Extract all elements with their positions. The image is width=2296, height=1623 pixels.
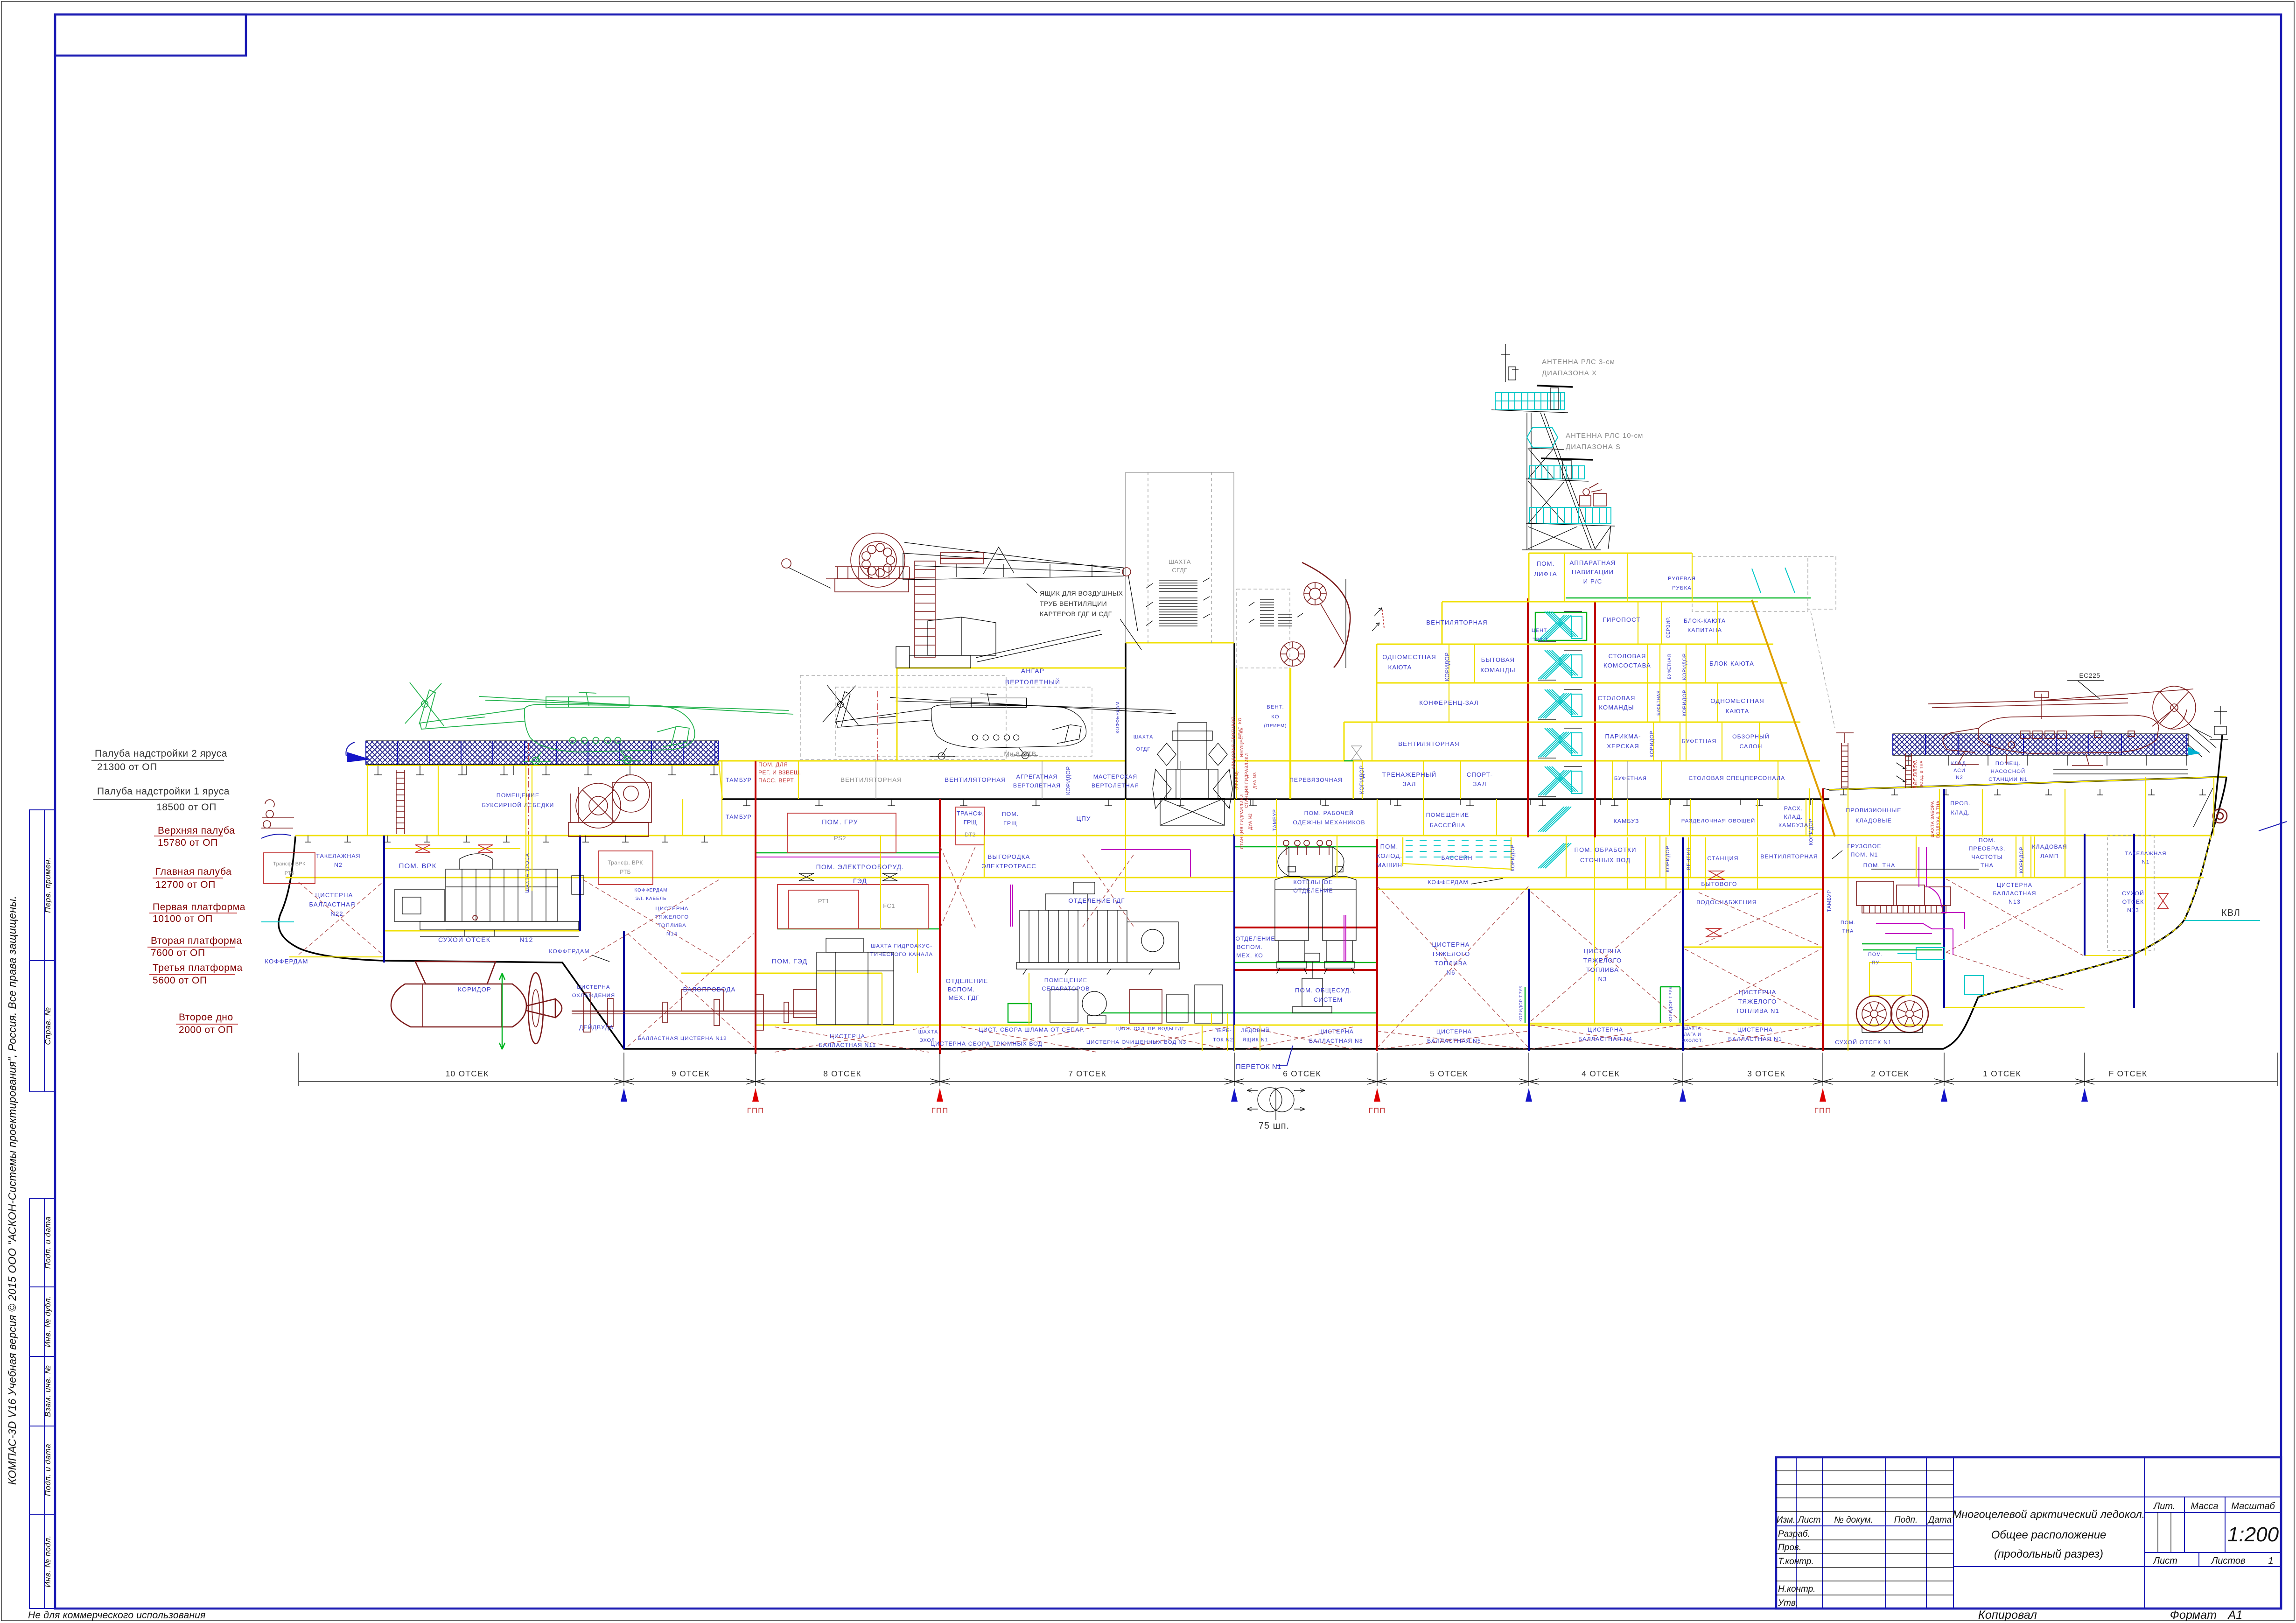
svg-text:N12: N12 — [519, 936, 533, 943]
svg-text:ШАХТА: ШАХТА — [1169, 558, 1191, 565]
svg-text:ШАХТА: ШАХТА — [918, 1029, 938, 1035]
svg-text:ЛАГА И: ЛАГА И — [1684, 1032, 1701, 1037]
svg-text:СУХОЙ ОТСЕК: СУХОЙ ОТСЕК — [438, 935, 490, 943]
svg-text:АГРЕГАТНАЯ: АГРЕГАТНАЯ — [1016, 773, 1058, 780]
svg-text:12700 от ОП: 12700 от ОП — [155, 879, 216, 890]
svg-text:НАСОСНОЙ: НАСОСНОЙ — [1991, 768, 2026, 774]
svg-text:Подп. и дата: Подп. и дата — [43, 1444, 52, 1496]
svg-text:КАРТЕРОВ ГДГ И СДГ: КАРТЕРОВ ГДГ И СДГ — [1040, 610, 1112, 618]
svg-text:КОРИДОР: КОРИДОР — [1649, 731, 1655, 757]
svg-text:2000 от ОП: 2000 от ОП — [179, 1025, 233, 1035]
svg-text:БАЛЛАСТНАЯ ЦИСТЕРНА N12: БАЛЛАСТНАЯ ЦИСТЕРНА N12 — [637, 1036, 727, 1041]
svg-text:N1: N1 — [2142, 859, 2150, 865]
svg-text:4 ОТСЕК: 4 ОТСЕК — [1582, 1069, 1620, 1078]
svg-text:КОРИДОР: КОРИДОР — [2019, 846, 2024, 873]
svg-text:ПОМ.: ПОМ. — [1002, 811, 1019, 817]
svg-text:КОРИДОР: КОРИДОР — [1510, 844, 1516, 871]
svg-text:Дата: Дата — [1927, 1515, 1952, 1525]
svg-text:ПОМ. РАБОЧЕЙ: ПОМ. РАБОЧЕЙ — [1304, 809, 1354, 816]
svg-text:ЛЕДОВЫЙ: ЛЕДОВЫЙ — [1241, 1027, 1269, 1033]
svg-text:ЦИСТЕРНА: ЦИСТЕРНА — [1318, 1028, 1354, 1035]
svg-text:ЦИСТ. ОХЛ. ПР. ВОДЫ ГДГ: ЦИСТ. ОХЛ. ПР. ВОДЫ ГДГ — [1116, 1026, 1184, 1032]
svg-text:ВСПОМ.: ВСПОМ. — [948, 986, 975, 993]
svg-text:РТБ: РТБ — [620, 869, 631, 875]
svg-text:Главная палуба: Главная палуба — [155, 866, 231, 877]
svg-text:БАЛЛАСТНАЯ N5: БАЛЛАСТНАЯ N5 — [1427, 1038, 1481, 1044]
svg-text:ЧАСТОТЫ: ЧАСТОТЫ — [1971, 854, 2002, 860]
svg-text:СТОЛОВАЯ: СТОЛОВАЯ — [1597, 695, 1635, 702]
svg-text:КЛАДОВАЯ: КЛАДОВАЯ — [2032, 843, 2067, 850]
svg-text:ЕС225: ЕС225 — [2079, 672, 2100, 679]
svg-text:ТАМБУР: ТАМБУР — [726, 814, 752, 820]
svg-text:Взам. инв. №: Взам. инв. № — [43, 1365, 52, 1417]
svg-text:КОМАНДЫ: КОМАНДЫ — [1599, 704, 1634, 711]
svg-text:ВЕНТИЛ.: ВЕНТИЛ. — [1686, 846, 1692, 870]
svg-text:ЦИСТ. СБОРА ШЛАМА ОТ СЕПАР.: ЦИСТ. СБОРА ШЛАМА ОТ СЕПАР. — [979, 1026, 1085, 1033]
svg-text:1: 1 — [2268, 1556, 2273, 1566]
svg-text:КОФФЕРДАМ: КОФФЕРДАМ — [1115, 702, 1120, 734]
svg-text:ПЕРЕТОК N1: ПЕРЕТОК N1 — [1236, 1063, 1281, 1071]
svg-text:ОХЛАЖДЕНИЯ: ОХЛАЖДЕНИЯ — [572, 993, 616, 998]
svg-text:ТОК N2: ТОК N2 — [1213, 1037, 1233, 1043]
svg-text:ВАЛОПРОВОДА: ВАЛОПРОВОДА — [683, 986, 736, 993]
svg-text:КЛАД.: КЛАД. — [1951, 761, 1968, 766]
svg-text:7 ОТСЕК: 7 ОТСЕК — [1068, 1069, 1106, 1078]
svg-text:ДУА N2: ДУА N2 — [1248, 813, 1253, 830]
svg-text:21300 от ОП: 21300 от ОП — [97, 762, 157, 773]
svg-text:ЦИСТЕРНА: ЦИСТЕРНА — [1583, 948, 1621, 955]
svg-text:ГПП: ГПП — [1814, 1106, 1832, 1115]
svg-text:КЛАД.: КЛАД. — [1784, 814, 1803, 820]
svg-text:ТАМБУР: ТАМБУР — [1272, 809, 1278, 831]
svg-text:ПОМ. ГРУ: ПОМ. ГРУ — [822, 819, 858, 826]
svg-text:Разраб.: Разраб. — [1778, 1529, 1810, 1539]
svg-text:ШАХТА: ШАХТА — [1684, 1026, 1701, 1031]
svg-text:ПОМ.: ПОМ. — [1380, 843, 1399, 850]
svg-text:6 ОТСЕК: 6 ОТСЕК — [1283, 1069, 1321, 1078]
svg-text:N6: N6 — [1446, 969, 1455, 976]
svg-text:МАШИН: МАШИН — [1376, 862, 1402, 869]
svg-text:ГИРОПОСТ: ГИРОПОСТ — [1603, 616, 1640, 623]
svg-text:ПОМ. ВРК: ПОМ. ВРК — [399, 862, 437, 870]
svg-text:ЦИСТЕРНА СБОРА ТРЮМНЫХ ВОД: ЦИСТЕРНА СБОРА ТРЮМНЫХ ВОД — [931, 1040, 1043, 1047]
svg-text:ЦЕНТ.: ЦЕНТ. — [1532, 628, 1548, 633]
svg-text:ШАХТА: ШАХТА — [1134, 734, 1154, 740]
svg-text:Инв. № дубл.: Инв. № дубл. — [43, 1296, 52, 1348]
svg-text:ВЕНТИЛЯТОРНАЯ: ВЕНТИЛЯТОРНАЯ — [1760, 853, 1818, 860]
svg-text:СТОЛОВАЯ: СТОЛОВАЯ — [1608, 653, 1646, 660]
svg-text:ПАСС. ВЕРТ.: ПАСС. ВЕРТ. — [758, 777, 795, 784]
svg-text:СТАНЦИЯ ГИДРАВЛИКИ: СТАНЦИЯ ГИДРАВЛИКИ — [1244, 753, 1249, 808]
svg-text:ВЕРТОЛЕТНАЯ: ВЕРТОЛЕТНАЯ — [1013, 782, 1061, 789]
svg-text:ПЕРЕ-: ПЕРЕ- — [1214, 1028, 1232, 1033]
svg-text:БЛОК-КАЮТА: БЛОК-КАЮТА — [1684, 618, 1726, 624]
svg-text:РТ1: РТ1 — [818, 898, 829, 905]
svg-text:ТОПЛИВА: ТОПЛИВА — [1435, 960, 1467, 967]
svg-text:СТАНЦИИ N1: СТАНЦИИ N1 — [1988, 777, 2028, 782]
svg-text:КОРИДОР: КОРИДОР — [1682, 653, 1687, 680]
svg-text:И Р/С: И Р/С — [1583, 578, 1603, 585]
svg-text:ОГДГ: ОГДГ — [1136, 746, 1151, 752]
svg-text:БУФЕТНАЯ: БУФЕТНАЯ — [1656, 690, 1661, 716]
svg-text:КОРИДОР: КОРИДОР — [1444, 652, 1450, 681]
svg-text:РУБКА: РУБКА — [1672, 585, 1692, 591]
svg-text:ПОМ. ГЭД: ПОМ. ГЭД — [772, 957, 807, 965]
svg-text:N22: N22 — [330, 910, 343, 917]
svg-text:Первая платформа: Первая платформа — [153, 902, 245, 913]
svg-text:ГРЩ: ГРЩ — [1003, 820, 1017, 827]
svg-text:ВЕНТИЛЯТОРНАЯ: ВЕНТИЛЯТОРНАЯ — [1398, 740, 1460, 747]
svg-text:СЕПАРАТОРОВ: СЕПАРАТОРОВ — [1042, 985, 1090, 992]
svg-text:PS2: PS2 — [834, 835, 846, 842]
svg-text:БАЛЛАСТНАЯ N4: БАЛЛАСТНАЯ N4 — [1578, 1036, 1632, 1042]
svg-text:10100 от ОП: 10100 от ОП — [153, 913, 213, 924]
svg-text:Подп. и дата: Подп. и дата — [43, 1216, 52, 1269]
svg-text:КОРИДОР: КОРИДОР — [1359, 765, 1365, 794]
svg-text:1:200: 1:200 — [2227, 1523, 2279, 1546]
svg-text:Лит.: Лит. — [2153, 1501, 2176, 1511]
svg-text:Изм.: Изм. — [1777, 1515, 1796, 1525]
svg-text:КАЮТА: КАЮТА — [1388, 664, 1412, 671]
svg-text:N3: N3 — [1598, 976, 1607, 983]
svg-text:ТАКЕЛАЖНАЯ: ТАКЕЛАЖНАЯ — [2125, 851, 2166, 857]
svg-text:СУХОЙ ОТСЕК N1: СУХОЙ ОТСЕК N1 — [1835, 1039, 1892, 1046]
svg-text:Подп.: Подп. — [1894, 1515, 1918, 1525]
svg-text:Инв. № подл.: Инв. № подл. — [43, 1535, 52, 1588]
svg-text:N2: N2 — [1956, 775, 1963, 780]
svg-text:FC1: FC1 — [883, 902, 895, 909]
svg-text:1 ОТСЕК: 1 ОТСЕК — [1983, 1069, 2021, 1078]
svg-text:ОДНОМЕСТНАЯ: ОДНОМЕСТНАЯ — [1710, 697, 1764, 704]
svg-text:Утв.: Утв. — [1778, 1598, 1798, 1608]
svg-text:КОРИДОР: КОРИДОР — [458, 986, 491, 993]
svg-text:КАМБУЗА: КАМБУЗА — [1778, 822, 1808, 829]
svg-text:Справ. №: Справ. № — [43, 1007, 52, 1045]
svg-text:ШАХТА ТРОСА: ШАХТА ТРОСА — [525, 853, 530, 892]
svg-text:Многоцелевой арктический ледок: Многоцелевой арктический ледокол. — [1953, 1508, 2145, 1520]
svg-text:ШАХТА ЗАБОРА: ШАХТА ЗАБОРА — [1930, 801, 1935, 837]
svg-text:АНТЕННА РЛС 3-см: АНТЕННА РЛС 3-см — [1542, 358, 1615, 366]
svg-text:ИМУЩЕСТВА: ИМУЩЕСТВА — [1239, 727, 1244, 757]
svg-text:ПОМ. ОБЩЕСУД.: ПОМ. ОБЩЕСУД. — [1295, 987, 1352, 994]
svg-text:ВЕНТИЛЯТОРНАЯ: ВЕНТИЛЯТОРНАЯ — [1426, 619, 1488, 626]
svg-text:РТ5: РТ5 — [285, 871, 294, 876]
svg-text:Верхняя палуба: Верхняя палуба — [158, 825, 235, 836]
svg-text:АНТЕННА РЛС 10-см: АНТЕННА РЛС 10-см — [1566, 432, 1643, 440]
svg-text:ТОПЛИВА: ТОПЛИВА — [1586, 966, 1619, 973]
svg-text:ТНА: ТНА — [1981, 862, 1994, 869]
svg-text:СПОРТ-: СПОРТ- — [1467, 771, 1493, 778]
svg-text:ТЯЖЕЛОГО: ТЯЖЕЛОГО — [1432, 950, 1470, 957]
svg-text:АНГАР: АНГАР — [1021, 667, 1045, 674]
svg-text:15780 от ОП: 15780 от ОП — [158, 837, 218, 848]
svg-text:Вторая платформа: Вторая платформа — [151, 935, 242, 946]
svg-text:КОРИДОР: КОРИДОР — [1665, 845, 1671, 872]
svg-text:ТЯЖЕЛОГО: ТЯЖЕЛОГО — [1738, 998, 1777, 1005]
svg-text:НАВИГАЦИИ: НАВИГАЦИИ — [1572, 569, 1614, 576]
svg-text:ЦИСТЕРНА: ЦИСТЕРНА — [1436, 1028, 1472, 1035]
svg-text:ВЕРТОЛЕТНАЯ: ВЕРТОЛЕТНАЯ — [1092, 782, 1139, 789]
svg-text:F ОТСЕК: F ОТСЕК — [2109, 1069, 2148, 1078]
svg-text:ОТДЕЛЕНИЕ: ОТДЕЛЕНИЕ — [1235, 935, 1275, 942]
svg-text:Палуба надстройки 2 яруса: Палуба надстройки 2 яруса — [95, 748, 227, 759]
svg-text:Копировал: Копировал — [1978, 1609, 2037, 1622]
svg-text:КОРИДОР: КОРИДОР — [1065, 766, 1071, 795]
svg-text:БУФЕТНАЯ: БУФЕТНАЯ — [1681, 738, 1716, 745]
svg-text:N14: N14 — [666, 931, 678, 937]
svg-text:75 шп.: 75 шп. — [1259, 1121, 1289, 1131]
svg-text:ГПП: ГПП — [1369, 1106, 1386, 1115]
svg-text:Второе дно: Второе дно — [179, 1012, 233, 1023]
svg-text:КЛАДОВАЯ ПРОТИВОП.: КЛАДОВАЯ ПРОТИВОП. — [1231, 715, 1236, 770]
svg-text:КОНФЕРЕНЦ-ЗАЛ: КОНФЕРЕНЦ-ЗАЛ — [1419, 699, 1478, 706]
svg-text:КО: КО — [1271, 714, 1280, 720]
svg-text:САЛОН: САЛОН — [1739, 743, 1762, 750]
svg-text:ВЕРТОЛЕТНЫЙ: ВЕРТОЛЕТНЫЙ — [1005, 678, 1061, 686]
svg-text:18500 от ОП: 18500 от ОП — [156, 802, 217, 813]
svg-text:Общее расположение: Общее расположение — [1991, 1529, 2107, 1541]
svg-text:ВЕНТИЛЯТОРНАЯ: ВЕНТИЛЯТОРНАЯ — [840, 776, 902, 783]
svg-text:8 ОТСЕК: 8 ОТСЕК — [823, 1069, 861, 1078]
svg-text:ПОМ. ОБРАБОТКИ: ПОМ. ОБРАБОТКИ — [1574, 846, 1636, 853]
svg-text:N13: N13 — [2009, 899, 2021, 905]
svg-text:ПОМЕЩЕНИЕ: ПОМЕЩЕНИЕ — [1426, 812, 1469, 818]
svg-text:ЦИСТЕРНА: ЦИСТЕРНА — [315, 892, 353, 899]
svg-text:СЕРВИР.: СЕРВИР. — [1666, 617, 1671, 638]
svg-text:РУЛЕВАЯ: РУЛЕВАЯ — [1668, 576, 1696, 582]
svg-text:РЕГ. И ВЗВЕШ.: РЕГ. И ВЗВЕШ. — [758, 769, 801, 776]
svg-text:ПОМ.: ПОМ. — [1841, 920, 1855, 926]
svg-text:ПРОВИЗИОННЫЕ: ПРОВИЗИОННЫЕ — [1846, 807, 1901, 814]
svg-text:КЛАДОВЫЕ: КЛАДОВЫЕ — [1855, 817, 1892, 824]
svg-text:ТНА: ТНА — [1842, 928, 1854, 934]
svg-text:ПОМ. ЭЛЕКТРООБОРУД.: ПОМ. ЭЛЕКТРООБОРУД. — [816, 863, 904, 871]
svg-text:Масса: Масса — [2191, 1501, 2218, 1511]
svg-text:ЭЛ. КАБЕЛЬ: ЭЛ. КАБЕЛЬ — [635, 896, 666, 901]
svg-text:СУХОЙ: СУХОЙ — [2122, 890, 2144, 897]
svg-text:БАССЕЙН: БАССЕЙН — [1441, 854, 1472, 861]
svg-text:ХЕРСКАЯ: ХЕРСКАЯ — [1607, 743, 1639, 750]
svg-text:ПОМЕЩЕНИЕ: ПОМЕЩЕНИЕ — [497, 792, 539, 799]
svg-text:КВЛ: КВЛ — [2221, 908, 2240, 918]
svg-text:Пров.: Пров. — [1778, 1543, 1801, 1553]
svg-text:ЗАЛ: ЗАЛ — [1402, 780, 1416, 787]
svg-text:ПОМ.: ПОМ. — [1537, 560, 1555, 567]
svg-text:БЛОК-КАЮТА: БЛОК-КАЮТА — [1709, 660, 1754, 667]
svg-text:(ПРИЕМ): (ПРИЕМ) — [1264, 724, 1287, 729]
svg-text:ВОЗД. В ТНА: ВОЗД. В ТНА — [1919, 760, 1924, 787]
svg-text:ЗАЛ: ЗАЛ — [1473, 780, 1486, 787]
svg-text:ВСПОМ.: ВСПОМ. — [1237, 944, 1262, 950]
svg-text:ТАМБУР: ТАМБУР — [1827, 890, 1832, 912]
svg-text:7600 от ОП: 7600 от ОП — [151, 948, 205, 958]
svg-text:СИСТЕМ: СИСТЕМ — [1314, 996, 1343, 1003]
svg-text:ЭЛЕКТРОТРАСС: ЭЛЕКТРОТРАСС — [981, 863, 1036, 870]
svg-text:КОРИДОР ТРУБ: КОРИДОР ТРУБ — [1668, 986, 1673, 1023]
svg-text:БАЛЛАСТНАЯ N1: БАЛЛАСТНАЯ N1 — [1728, 1036, 1782, 1042]
svg-text:ТРАП: ТРАП — [1533, 637, 1547, 643]
svg-text:ЭХОЛ.: ЭХОЛ. — [919, 1038, 937, 1043]
svg-text:БЫТОВАЯ: БЫТОВАЯ — [1481, 656, 1515, 663]
svg-text:ТРАНСФ.: ТРАНСФ. — [957, 810, 984, 817]
svg-text:ОТДЕЛЕНИЕ: ОТДЕЛЕНИЕ — [1293, 887, 1333, 894]
svg-text:КОФФЕРДАМ: КОФФЕРДАМ — [1428, 879, 1469, 885]
svg-text:КОФФЕРДАМ: КОФФЕРДАМ — [549, 948, 590, 955]
svg-text:БАЛЛАСТНАЯ: БАЛЛАСТНАЯ — [309, 901, 355, 908]
svg-text:ВЕНТИЛЯТОРНАЯ: ВЕНТИЛЯТОРНАЯ — [945, 776, 1006, 783]
svg-text:ГПП: ГПП — [931, 1106, 949, 1115]
svg-text:(продольный разрез): (продольный разрез) — [1994, 1548, 2103, 1560]
svg-text:ДУА N3: ДУА N3 — [1253, 772, 1257, 789]
svg-text:3 ОТСЕК: 3 ОТСЕК — [1747, 1069, 1785, 1078]
svg-text:ВЕНТ.: ВЕНТ. — [1267, 704, 1284, 710]
svg-text:СТАНЦИЯ ГИДРАВЛИКИ: СТАНЦИЯ ГИДРАВЛИКИ — [1239, 794, 1244, 849]
svg-text:ШАХТА ГИДРОАКУС-: ШАХТА ГИДРОАКУС- — [871, 943, 932, 949]
svg-text:10 ОТСЕК: 10 ОТСЕК — [446, 1069, 489, 1078]
svg-text:ТОПЛИВА N1: ТОПЛИВА N1 — [1736, 1007, 1779, 1014]
svg-text:ЦИСТЕРНА: ЦИСТЕРНА — [830, 1033, 865, 1040]
svg-text:КАПИТАНА: КАПИТАНА — [1687, 627, 1722, 633]
svg-text:ЦПУ: ЦПУ — [1077, 815, 1091, 822]
svg-text:ВОДОСНАБЖЕНИЯ: ВОДОСНАБЖЕНИЯ — [1696, 899, 1757, 906]
svg-text:Т.контр.: Т.контр. — [1778, 1557, 1814, 1567]
svg-text:ПУ: ПУ — [1872, 960, 1880, 966]
svg-text:Листов: Листов — [2211, 1556, 2246, 1566]
svg-text:Лист: Лист — [2152, 1556, 2177, 1566]
svg-text:ПОМ. N1: ПОМ. N1 — [1851, 851, 1878, 858]
svg-text:СТОЛОВАЯ СПЕЦПЕРСОНАЛА: СТОЛОВАЯ СПЕЦПЕРСОНАЛА — [1689, 775, 1785, 781]
svg-text:КОРИДОР: КОРИДОР — [1682, 689, 1687, 716]
svg-text:DT2: DT2 — [965, 831, 976, 838]
svg-text:Перв. примен.: Перв. примен. — [43, 857, 52, 913]
svg-text:ТИЧЕСКОГО КАНАЛА: ТИЧЕСКОГО КАНАЛА — [870, 952, 933, 957]
svg-text:БАЛЛАСТНАЯ: БАЛЛАСТНАЯ — [1993, 890, 2036, 897]
svg-text:КАЮТА: КАЮТА — [1726, 708, 1750, 715]
svg-text:ГПП: ГПП — [747, 1106, 764, 1115]
svg-text:ПОМЕЩ.: ПОМЕЩ. — [1995, 761, 2021, 766]
svg-text:ВОЗДУХА В ТНА: ВОЗДУХА В ТНА — [1936, 801, 1940, 838]
svg-text:КОТЕЛЬНОЕ: КОТЕЛЬНОЕ — [1294, 879, 1333, 885]
svg-text:N2: N2 — [334, 862, 343, 868]
svg-text:Не для коммерческого использов: Не для коммерческого использования — [28, 1610, 206, 1621]
svg-text:Масштаб: Масштаб — [2231, 1501, 2275, 1511]
svg-text:ЯЩИК N1: ЯЩИК N1 — [1242, 1037, 1268, 1043]
svg-text:ХОЛОД.: ХОЛОД. — [1376, 852, 1402, 859]
svg-text:АППАРАТНАЯ: АППАРАТНАЯ — [1570, 559, 1616, 566]
svg-text:СГДГ: СГДГ — [1172, 567, 1187, 574]
svg-text:ВЫГ. ЗАБОРА: ВЫГ. ЗАБОРА — [1914, 760, 1918, 788]
svg-text:ТАМБУР: ТАМБУР — [726, 777, 752, 783]
svg-text:5 ОТСЕК: 5 ОТСЕК — [1430, 1069, 1468, 1078]
svg-text:2 ОТСЕК: 2 ОТСЕК — [1871, 1069, 1909, 1078]
svg-text:ТЯЖЕЛОГО: ТЯЖЕЛОГО — [655, 914, 689, 920]
svg-text:ДЕЙДВУДА: ДЕЙДВУДА — [579, 1024, 614, 1031]
svg-text:МЕХ. ГДГ: МЕХ. ГДГ — [948, 994, 980, 1001]
svg-text:ГРЩ: ГРЩ — [964, 819, 977, 826]
svg-text:ГЭД: ГЭД — [853, 877, 867, 885]
svg-text:БЫТОВОГО: БЫТОВОГО — [1701, 881, 1737, 887]
svg-text:ОТДЕЛЕНИЕ ГДГ: ОТДЕЛЕНИЕ ГДГ — [1068, 897, 1125, 904]
svg-text:МЕХ. КО: МЕХ. КО — [1236, 952, 1263, 959]
svg-text:ЦИСТЕРНА: ЦИСТЕРНА — [1432, 941, 1470, 948]
svg-text:КОМСОСТАВА: КОМСОСТАВА — [1603, 662, 1651, 669]
svg-text:ЛАМП: ЛАМП — [2040, 853, 2059, 859]
svg-text:Трансф. ВРК: Трансф. ВРК — [608, 859, 643, 866]
svg-text:ОБЗОРНЫЙ: ОБЗОРНЫЙ — [1732, 733, 1770, 740]
svg-text:ЛИФТА: ЛИФТА — [1534, 570, 1557, 577]
svg-text:КОРИДОР: КОРИДОР — [1808, 818, 1814, 845]
svg-text:ЭХОЛОТ.: ЭХОЛОТ. — [1682, 1038, 1703, 1043]
svg-text:ТРУБ ВЕНТИЛЯЦИИ: ТРУБ ВЕНТИЛЯЦИИ — [1040, 600, 1107, 607]
svg-text:КАМБУЗ: КАМБУЗ — [1614, 818, 1639, 824]
svg-text:СТОЧНЫХ ВОД: СТОЧНЫХ ВОД — [1580, 857, 1631, 864]
svg-text:ТРЕНАЖЕРНЫЙ: ТРЕНАЖЕРНЫЙ — [1382, 771, 1437, 778]
svg-text:Третья платформа: Третья платформа — [153, 963, 243, 973]
svg-text:ТОПЛИВА: ТОПЛИВА — [658, 923, 686, 928]
svg-text:КОФФЕРДАМ: КОФФЕРДАМ — [634, 888, 667, 893]
svg-text:РАСХ.: РАСХ. — [1784, 805, 1803, 812]
svg-text:БАЛЛАСТНАЯ N8: БАЛЛАСТНАЯ N8 — [1309, 1038, 1363, 1044]
svg-text:№ докум.: № докум. — [1834, 1515, 1873, 1525]
svg-text:АСИ: АСИ — [1953, 768, 1965, 773]
svg-text:ЯЩИК ДЛЯ ВОЗДУШНЫХ: ЯЩИК ДЛЯ ВОЗДУШНЫХ — [1040, 590, 1123, 597]
svg-text:ДИАПАЗОНА X: ДИАПАЗОНА X — [1542, 369, 1597, 377]
svg-text:КЛАД.: КЛАД. — [1951, 809, 1970, 816]
svg-text:Формат: Формат — [2170, 1609, 2217, 1622]
svg-text:ОДЕЖНЫ МЕХАНИКОВ: ОДЕЖНЫ МЕХАНИКОВ — [1293, 819, 1365, 826]
svg-text:А1: А1 — [2227, 1609, 2243, 1622]
svg-text:ПОМ.: ПОМ. — [1979, 837, 1995, 843]
svg-text:ПРОВ.: ПРОВ. — [1950, 800, 1970, 807]
svg-text:ОДНОМЕСТНАЯ: ОДНОМЕСТНАЯ — [1382, 653, 1436, 660]
svg-text:КОМПАС-3D V16 Учебная версия: КОМПАС-3D V16 Учебная версия © 2015 ООО … — [6, 896, 18, 1485]
svg-text:ЦИСТЕРНА: ЦИСТЕРНА — [1588, 1026, 1623, 1033]
svg-text:СТАНЦИЯ: СТАНЦИЯ — [1707, 855, 1738, 862]
svg-text:ГРУЗОВОЕ: ГРУЗОВОЕ — [1847, 843, 1881, 850]
svg-text:ТЯЖЕЛОГО: ТЯЖЕЛОГО — [1583, 957, 1622, 964]
svg-text:ПЕРЕВЯЗОЧНАЯ: ПЕРЕВЯЗОЧНАЯ — [1289, 777, 1343, 783]
svg-text:ПАРИКМА-: ПАРИКМА- — [1605, 733, 1641, 740]
svg-text:ЦИСТЕРНА: ЦИСТЕРНА — [1738, 989, 1776, 996]
svg-text:ЦИСТЕРНА: ЦИСТЕРНА — [655, 906, 688, 912]
svg-text:Лист: Лист — [1797, 1515, 1821, 1525]
svg-text:(ПРИЕМ): (ПРИЕМ) — [1235, 771, 1239, 789]
svg-text:9 ОТСЕК: 9 ОТСЕК — [672, 1069, 710, 1078]
svg-text:ПОМЕЩЕНИЕ: ПОМЕЩЕНИЕ — [1044, 977, 1087, 984]
svg-text:ТАКЕЛАЖНАЯ: ТАКЕЛАЖНАЯ — [316, 853, 360, 859]
svg-text:ЦИСТЕРНА ОЧИЩЕННЫХ ВОД N3: ЦИСТЕРНА ОЧИЩЕННЫХ ВОД N3 — [1086, 1040, 1186, 1045]
svg-text:N13: N13 — [2127, 907, 2139, 913]
svg-text:БУФЕТНАЯ: БУФЕТНАЯ — [1614, 776, 1647, 781]
svg-text:ПОМ. ТНА: ПОМ. ТНА — [1863, 862, 1896, 869]
svg-text:Н.контр.: Н.контр. — [1778, 1584, 1815, 1594]
svg-text:Трансф. ВРК: Трансф. ВРК — [273, 861, 306, 867]
svg-text:РАЗДЕЛОЧНАЯ ОВОЩЕЙ: РАЗДЕЛОЧНАЯ ОВОЩЕЙ — [1681, 818, 1756, 824]
svg-text:ПОМ. ДЛЯ: ПОМ. ДЛЯ — [758, 761, 788, 768]
svg-text:ПРЕОБРАЗ.: ПРЕОБРАЗ. — [1968, 845, 2005, 852]
svg-text:ЦИСТЕРНА: ЦИСТЕРНА — [1737, 1026, 1773, 1033]
svg-text:ЦИСТЕРНА: ЦИСТЕРНА — [1997, 882, 2032, 888]
svg-text:БАССЕЙНА: БАССЕЙНА — [1430, 822, 1465, 829]
svg-text:КОМАНДЫ: КОМАНДЫ — [1480, 667, 1515, 674]
svg-text:ПОМ.: ПОМ. — [1868, 952, 1883, 957]
svg-text:ЦИСТЕРНА: ЦИСТЕРНА — [577, 984, 610, 990]
svg-text:ДИАПАЗОНА S: ДИАПАЗОНА S — [1566, 443, 1621, 451]
svg-text:КОФФЕРДАМ: КОФФЕРДАМ — [265, 958, 308, 965]
svg-text:МАСТЕРСКАЯ: МАСТЕРСКАЯ — [1093, 773, 1138, 780]
svg-text:Палуба надстройки 1 яруса: Палуба надстройки 1 яруса — [97, 786, 230, 797]
svg-text:БУФЕТНАЯ: БУФЕТНАЯ — [1667, 654, 1672, 679]
